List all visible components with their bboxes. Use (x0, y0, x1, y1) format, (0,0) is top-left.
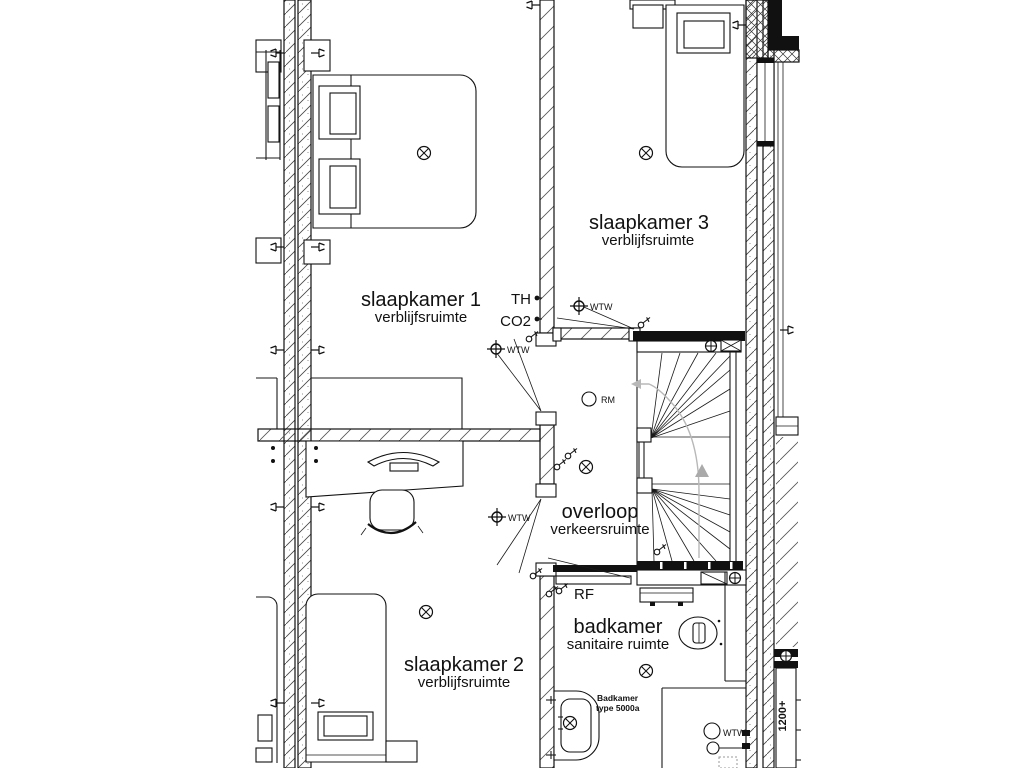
duct-black (768, 0, 799, 50)
light-switch-icon (565, 448, 577, 458)
staircase (631, 331, 746, 585)
thermostat-label: TH (511, 291, 531, 308)
room-function-slaapkamer1: verblijfsruimte (375, 309, 468, 326)
wtw-valve-icon (570, 297, 588, 315)
wall-middle-vertical (536, 0, 556, 768)
wtw-label: WTW (507, 345, 530, 355)
wtw-valve-icon (487, 340, 505, 358)
room-function-slaapkamer3: verblijfsruimte (602, 232, 695, 249)
co2-label: CO2 (500, 313, 531, 330)
bedroom1-bed (313, 75, 476, 228)
bedroom2-desk (306, 441, 463, 535)
room-label-slaapkamer2: slaapkamer 2 (404, 654, 524, 676)
bath-spec-line2: type 5000a (596, 703, 640, 713)
wall-bedroom3-landing (553, 328, 640, 341)
stair-treads (651, 353, 730, 561)
wall-light-icon (564, 717, 577, 730)
floor-plan-sheet: 1200+ (0, 0, 1024, 768)
door-bedroom1 (496, 331, 541, 411)
mv-unit-icon (704, 723, 720, 739)
door-handle-icon (556, 583, 568, 593)
room-label-overloop: overloop (562, 501, 639, 523)
rf-label: RF (574, 586, 594, 603)
room-label-slaapkamer3: slaapkamer 3 (589, 212, 709, 234)
bedroom2-nightstand (386, 741, 417, 762)
window-sill-height-label: 1200+ (777, 701, 789, 732)
vent-circle-icon (781, 651, 792, 662)
stair-direction-arrow-icon (631, 379, 641, 389)
desk-chair (370, 490, 414, 530)
light-switch-icon (638, 317, 650, 327)
wall-bedroom1-bedroom2 (258, 429, 540, 441)
bath-spec-line1: Badkamer (597, 693, 639, 703)
newel-post (637, 428, 651, 442)
bedroom1-closet (311, 378, 462, 429)
smoke-detector-icon (582, 392, 596, 406)
ceiling-light-icon (420, 606, 433, 619)
door-bedroom2 (497, 499, 542, 579)
room-function-badkamer: sanitaire ruimte (567, 636, 670, 653)
side-window-frame (757, 58, 774, 146)
ceiling-light-icon (418, 147, 431, 160)
bedroom2-bed (306, 594, 417, 762)
room-function-overloop: verkeersruimte (550, 521, 649, 538)
ceiling-light-icon (640, 147, 653, 160)
room-label-badkamer: badkamer (574, 616, 663, 638)
ceiling-light-icon (640, 665, 653, 678)
mv-unit-label: WTW (723, 728, 746, 738)
door-jamb (536, 412, 556, 425)
wtw-valve-icon (488, 508, 506, 526)
wtw-label: WTW (508, 513, 531, 523)
light-switch-icon (554, 459, 566, 469)
smoke-detector-label: RM (601, 395, 615, 405)
neighbour-window: 1200+ (774, 649, 801, 768)
room-function-slaapkamer2: verblijfsruimte (418, 674, 511, 691)
chimney-crosshatch (746, 0, 768, 58)
radiator (640, 588, 693, 602)
light-switch-icon (654, 544, 666, 554)
door-jamb (536, 484, 556, 497)
vent-circle-icon (730, 573, 741, 584)
room-label-slaapkamer1: slaapkamer 1 (361, 289, 481, 311)
newel-post (637, 478, 652, 493)
ceiling-light-icon (580, 461, 593, 474)
bedroom3-bed (633, 5, 744, 167)
wtw-label: WTW (590, 302, 613, 312)
vent-circle-icon (706, 341, 717, 352)
bedroom3-nightstand (633, 5, 663, 28)
floor-plan-drawing: 1200+ (0, 0, 1024, 768)
